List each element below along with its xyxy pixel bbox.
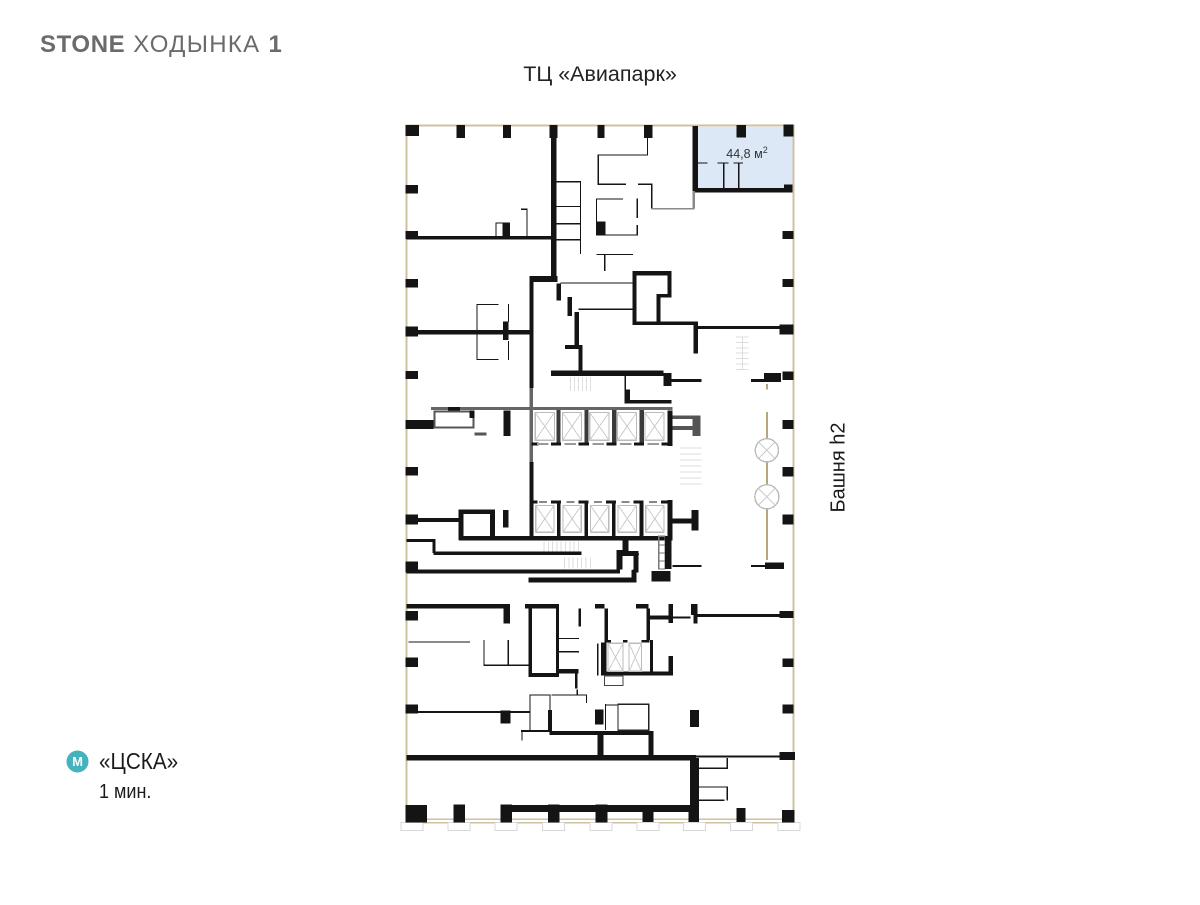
svg-text:M: M: [72, 754, 83, 769]
